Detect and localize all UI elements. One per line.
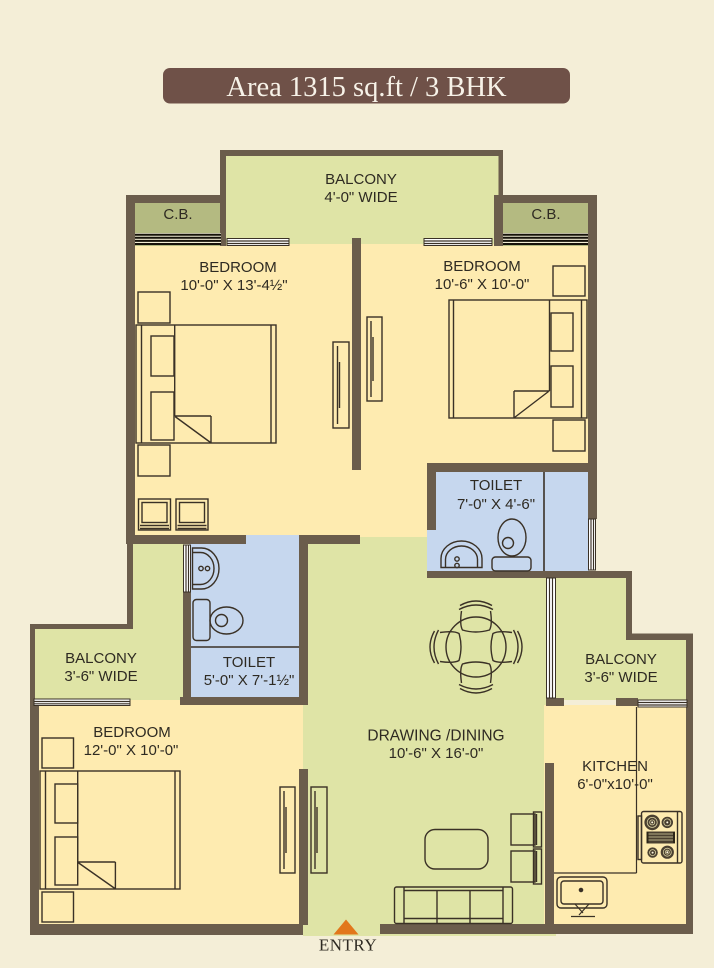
svg-text:DRAWING /DINING: DRAWING /DINING: [367, 728, 504, 745]
svg-text:TOILET: TOILET: [223, 654, 275, 671]
svg-text:4'-0" WIDE: 4'-0" WIDE: [324, 189, 397, 206]
svg-text:6'-0"x10'-0": 6'-0"x10'-0": [577, 776, 653, 793]
svg-text:BEDROOM: BEDROOM: [443, 258, 521, 275]
svg-text:KITCHEN: KITCHEN: [582, 758, 648, 775]
svg-text:BEDROOM: BEDROOM: [199, 259, 277, 276]
svg-text:10'-6" X 16'-0": 10'-6" X 16'-0": [389, 745, 484, 762]
svg-text:12'-0" X 10'-0": 12'-0" X 10'-0": [84, 742, 179, 759]
svg-text:3'-6" WIDE: 3'-6" WIDE: [64, 668, 137, 685]
svg-text:C.B.: C.B.: [163, 206, 192, 223]
svg-text:5'-0" X 7'-1½": 5'-0" X 7'-1½": [204, 672, 295, 689]
svg-text:TOILET: TOILET: [470, 477, 522, 494]
svg-text:BALCONY: BALCONY: [585, 651, 657, 668]
svg-text:3'-6" WIDE: 3'-6" WIDE: [584, 669, 657, 686]
svg-text:BALCONY: BALCONY: [65, 650, 137, 667]
svg-text:10'-0" X 13'-4½": 10'-0" X 13'-4½": [180, 277, 287, 294]
svg-text:BALCONY: BALCONY: [325, 171, 397, 188]
svg-text:7'-0" X 4'-6": 7'-0" X 4'-6": [457, 496, 535, 513]
svg-text:C.B.: C.B.: [531, 206, 560, 223]
svg-text:Area 1315 sq.ft / 3 BHK: Area 1315 sq.ft / 3 BHK: [226, 72, 507, 103]
svg-text:ENTRY: ENTRY: [319, 936, 377, 955]
svg-text:10'-6" X 10'-0": 10'-6" X 10'-0": [435, 276, 530, 293]
svg-text:BEDROOM: BEDROOM: [93, 724, 171, 741]
